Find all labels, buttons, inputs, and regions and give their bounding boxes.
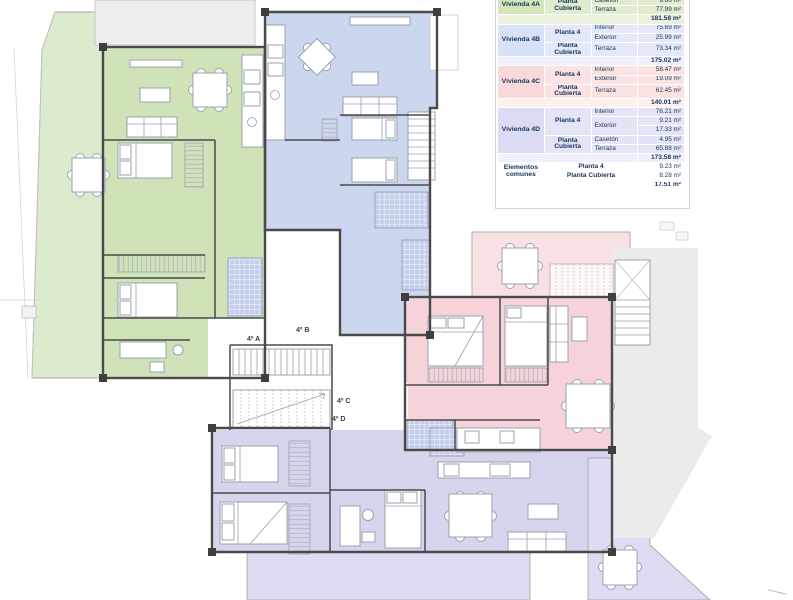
bed bbox=[385, 490, 421, 548]
dining-table bbox=[562, 380, 615, 433]
exterior-stair bbox=[615, 260, 650, 345]
sofa bbox=[127, 117, 177, 137]
value: 17.33 m² bbox=[638, 126, 685, 135]
planta-cubierta-label: Planta Cubierta bbox=[544, 42, 591, 56]
wardrobe bbox=[505, 368, 547, 382]
sofa bbox=[343, 97, 397, 116]
concept-terraza: Terraza bbox=[591, 6, 638, 15]
sofa bbox=[550, 306, 568, 362]
label-4a: 4º A bbox=[247, 336, 260, 343]
dining-table bbox=[445, 492, 497, 542]
concept-interior: Interior bbox=[591, 108, 638, 117]
spacer bbox=[498, 98, 638, 107]
coffee-table bbox=[140, 88, 170, 102]
corner-mark bbox=[768, 590, 786, 594]
bed bbox=[220, 502, 287, 544]
coffee-table bbox=[528, 504, 558, 519]
planta-4-label: Planta 4 bbox=[544, 108, 591, 136]
terrace-table bbox=[498, 244, 543, 289]
value: 4.95 m² bbox=[638, 135, 685, 144]
concept-terraza: Terraza bbox=[591, 42, 638, 56]
planta-cubierta-label: Planta Cubierta bbox=[544, 172, 638, 181]
value: 75.69 m² bbox=[638, 24, 685, 33]
common-elements-label: Elementos comunes bbox=[498, 163, 545, 181]
concept-caseton: Casetón bbox=[591, 135, 638, 144]
bed bbox=[118, 283, 177, 317]
kitchen bbox=[438, 462, 530, 478]
value: 19.09 m² bbox=[638, 75, 685, 84]
total-4a: 181.58 m² bbox=[638, 15, 685, 24]
kitchen bbox=[457, 428, 540, 452]
value: 58.47 m² bbox=[638, 66, 685, 75]
spacer bbox=[498, 15, 638, 24]
planta-4-label: Planta 4 bbox=[544, 66, 591, 84]
concept-exterior: Exterior bbox=[591, 117, 638, 135]
value: 62.45 m² bbox=[638, 84, 685, 98]
side-table bbox=[572, 317, 587, 341]
planta-4-label: Planta 4 bbox=[544, 24, 591, 42]
wardrobe bbox=[289, 441, 310, 486]
bed bbox=[505, 306, 547, 366]
concept-exterior: Exterior bbox=[591, 75, 638, 84]
bed bbox=[222, 446, 278, 482]
section-marker bbox=[22, 306, 36, 318]
bed bbox=[118, 143, 172, 178]
value: 65.88 m² bbox=[638, 144, 685, 153]
wardrobe bbox=[118, 255, 205, 272]
dining-table bbox=[189, 69, 232, 112]
spacer bbox=[498, 181, 638, 190]
coffee-table bbox=[352, 72, 378, 85]
bed bbox=[428, 316, 483, 366]
value: 73.34 m² bbox=[638, 42, 685, 56]
bed bbox=[352, 118, 397, 140]
spacer bbox=[498, 57, 638, 66]
sofa bbox=[508, 532, 566, 551]
value: 9.21 m² bbox=[638, 117, 685, 126]
value: 8.28 m² bbox=[638, 172, 685, 181]
total-4c: 140.01 m² bbox=[638, 98, 685, 107]
concept-terraza: Terraza bbox=[591, 84, 638, 98]
value: 77.99 m² bbox=[638, 6, 685, 15]
unit-4b-label: Vivienda 4B bbox=[498, 24, 545, 57]
kitchen bbox=[266, 25, 285, 140]
shelf bbox=[130, 60, 182, 67]
total-4b: 175.02 m² bbox=[638, 57, 685, 66]
planta-cubierta-label: Planta Cubierta bbox=[544, 0, 591, 15]
unit-4a-label: Vivienda 4A bbox=[498, 0, 545, 15]
planta-cubierta-label: Planta Cubierta bbox=[544, 135, 591, 153]
unit-4d-label: Vivienda 4D bbox=[498, 108, 545, 154]
value: 25.99 m² bbox=[638, 33, 685, 42]
unit-4c-label: Vivienda 4C bbox=[498, 66, 545, 99]
wardrobe bbox=[185, 143, 203, 187]
floorplan-page: 4º A 4º B 4º C 4º D Vivienda 4A Planta C… bbox=[0, 0, 793, 600]
concept-exterior: Exterior bbox=[591, 33, 638, 42]
value: 76.21 m² bbox=[638, 108, 685, 117]
kitchen bbox=[242, 55, 263, 147]
wardrobe bbox=[322, 119, 337, 141]
label-4d: 4º D bbox=[332, 416, 345, 423]
label-4b: 4º B bbox=[296, 327, 309, 334]
terrace-stair bbox=[550, 264, 613, 297]
concept-terraza: Terraza bbox=[591, 144, 638, 153]
bed bbox=[352, 158, 397, 182]
planta-4-label: Planta 4 bbox=[544, 163, 638, 172]
concept-interior: Interior bbox=[591, 66, 638, 75]
total-common: 17.51 m² bbox=[638, 181, 685, 190]
spacer bbox=[498, 154, 638, 163]
label-4c: 4º C bbox=[337, 398, 350, 405]
caseton-roof bbox=[95, 0, 255, 45]
shelf bbox=[350, 17, 410, 25]
wardrobe bbox=[289, 504, 310, 554]
awning-outline bbox=[14, 48, 28, 378]
areas-table: Vivienda 4A Planta Cubierta Casetón 9.86… bbox=[497, 0, 685, 191]
value: 9.23 m² bbox=[638, 163, 685, 172]
wardrobe bbox=[428, 368, 483, 382]
total-4d: 173.58 m² bbox=[638, 154, 685, 163]
concept-interior: Interior bbox=[591, 24, 638, 33]
planta-cubierta-label: Planta Cubierta bbox=[544, 84, 591, 98]
